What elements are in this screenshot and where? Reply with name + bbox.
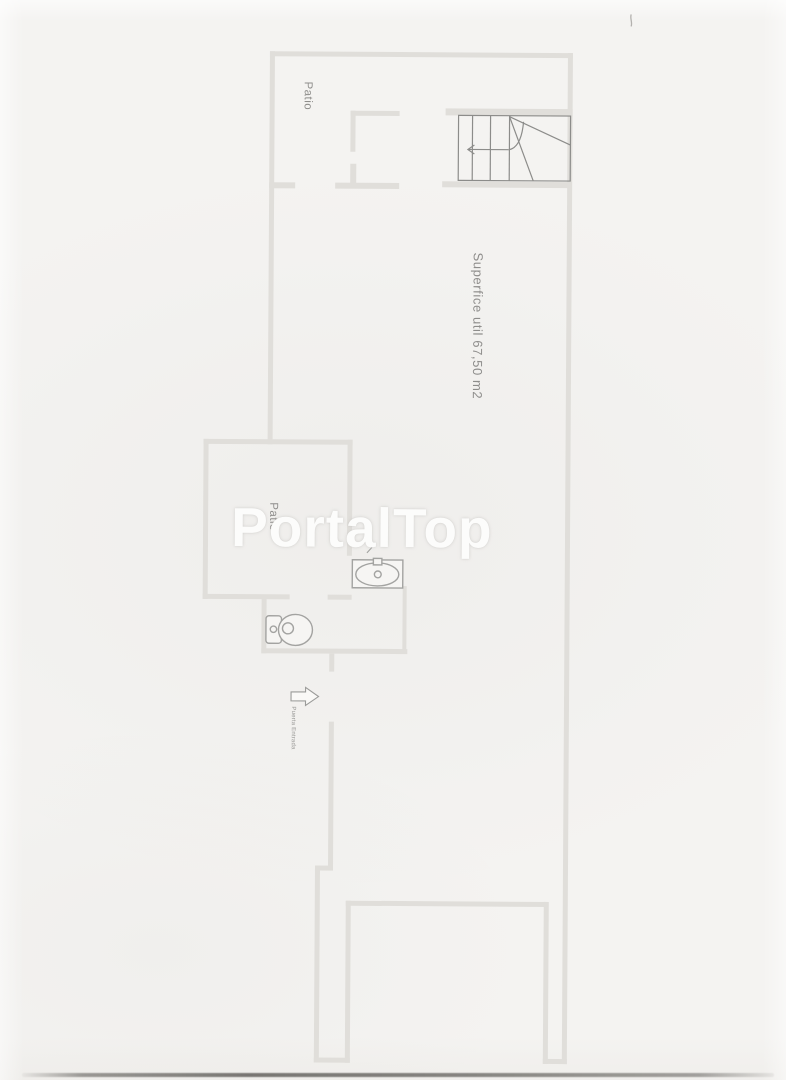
- wall-mid-center-seg: [335, 183, 399, 189]
- stair-outline: [458, 115, 570, 181]
- staircase: [458, 115, 570, 181]
- wall-patio2-left: [203, 439, 209, 599]
- wall-left-upper: [268, 51, 275, 444]
- sink-drain: [374, 571, 381, 578]
- patio-top-label: Patio: [302, 81, 314, 110]
- wall-door-stub: [329, 654, 334, 672]
- toilet-tank-button: [270, 626, 276, 632]
- scan-pen-mark: [631, 14, 632, 26]
- surface-area-label: Superfice util 67,50 m2: [470, 252, 486, 399]
- floor-plan: Patio Superfice util 67,50 m2 Patio Puer…: [0, 0, 786, 1080]
- entrance-door-label: Puerta Entrada: [290, 706, 296, 749]
- wall-bottom-conn-right: [543, 1059, 567, 1064]
- wall-left-lower: [314, 866, 320, 1063]
- wall-patio2-bottom-right: [328, 595, 352, 600]
- wall-sink-right: [402, 586, 406, 652]
- wall-right: [562, 53, 573, 1064]
- wall-mid-left-seg: [269, 182, 295, 188]
- wall-bath-bottom: [261, 648, 407, 654]
- watermark: PortalTop: [231, 495, 493, 561]
- wall-patio2-top: [204, 439, 353, 445]
- wall-patio-stub-a: [350, 111, 355, 152]
- wall-room-right: [543, 902, 549, 1064]
- scanned-floor-plan-page: Patio Superfice util 67,50 m2 Patio Puer…: [0, 0, 786, 1080]
- wall-patio-inner-h: [351, 111, 400, 116]
- toilet-bowl-detail: [282, 623, 293, 634]
- wall-room-left: [345, 901, 351, 1063]
- wall-room-top: [346, 901, 548, 907]
- scan-edge-artifact: [22, 1073, 774, 1077]
- entrance-arrow-icon: [291, 687, 319, 705]
- wall-patio2-bottom-left: [203, 594, 290, 600]
- wall-top: [270, 51, 573, 58]
- toilet-icon: [266, 614, 313, 645]
- wall-entrance: [328, 722, 334, 868]
- wall-stair-bottom: [442, 181, 570, 188]
- wall-bottom-conn-left: [314, 1058, 350, 1063]
